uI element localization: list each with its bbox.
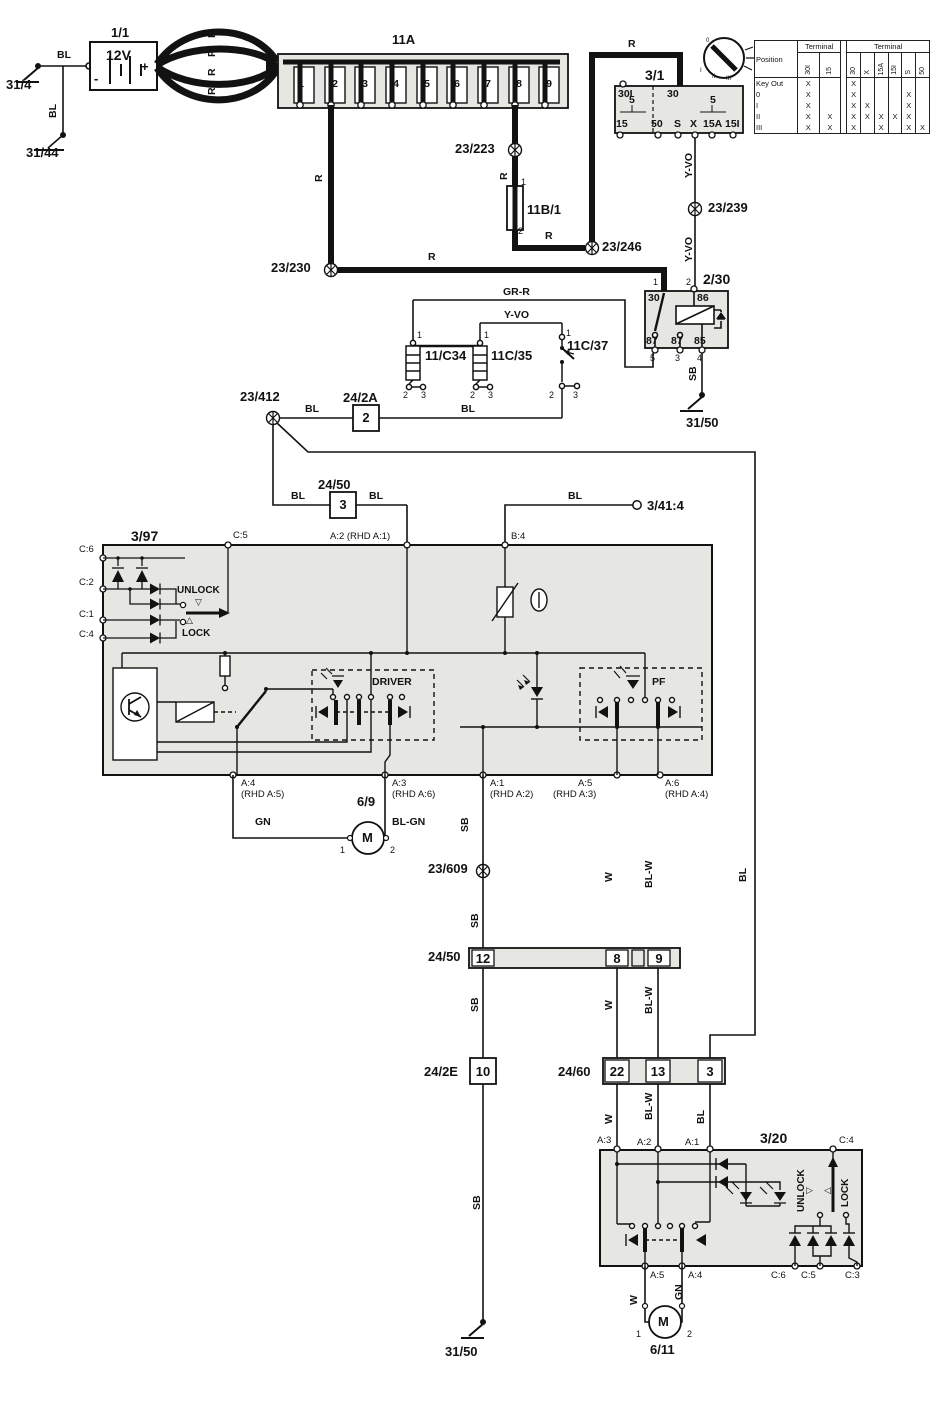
switch37-p2: 2 [549,391,554,400]
unit397-id: 3/97 [131,529,158,543]
wire-label-r: R [207,30,218,38]
key-pos-0: 0 [706,38,709,44]
unit397-c1: C:1 [79,610,94,620]
switch37-p1: 1 [566,329,571,338]
conn24-50a-id: 24/50 [318,478,351,491]
wire-label-bl: BL [696,1110,707,1124]
unit397-unlock: UNLOCK [177,586,220,596]
unit397-a4: A:4 [241,779,255,789]
splice-23-412 [267,412,280,425]
key-pos-2: II [712,74,715,80]
unit397-c4: C:4 [79,630,94,640]
relay-t87a: 87 [646,336,658,347]
key-icon [704,38,755,78]
splice-label-23-246: 23/246 [602,240,642,253]
wire-label-gn: GN [255,817,271,828]
strip24-50-p8: 8 [606,952,628,965]
fuse-8: 8 [511,79,527,90]
wire-label-sb: SB [688,366,699,381]
wire-label-sb: SB [460,817,471,832]
motor611-m: M [658,1315,669,1328]
strip24-60-p13: 13 [646,1065,670,1078]
splice-23-230 [325,264,338,277]
lamp35-p2: 2 [470,391,475,400]
col-50: 50 [919,67,926,75]
ignition-x: X [690,119,697,130]
wire-label-bl: BL [369,491,383,502]
fuse-4: 4 [388,79,404,90]
wire-label-bl: BL [291,491,305,502]
wire-label-bl: BL [461,404,475,415]
fuse-3: 3 [357,79,373,90]
unit320-lock: LOCK [841,1179,851,1207]
relay-pin2: 2 [686,278,691,287]
unit320-a5: A:5 [650,1271,664,1281]
wire-label-grr: GR-R [503,287,530,298]
wire-label-w: W [604,872,615,882]
lock-arrow-icon: △ [186,616,193,625]
splice-label-23-239: 23/239 [708,201,748,214]
wire-label-bl: BL [57,50,71,61]
unit397-c5: C:5 [233,531,248,541]
fuse-7: 7 [480,79,496,90]
ignition-30: 30 [667,89,679,100]
relay-pin3: 3 [675,354,680,363]
splice-label-23-412: 23/412 [240,390,280,403]
wire-label-yvo: Y-VO [504,310,529,321]
unit397-a2: A:2 (RHD A:1) [330,532,390,542]
motor69-id: 6/9 [357,795,375,808]
connector-3-41-4-circle [633,501,641,509]
ignition-50: 50 [651,119,663,130]
splice-label-23-223: 23/223 [455,142,495,155]
wire-label-blgn: BL-GN [392,817,425,828]
relay-t86: 86 [697,293,709,304]
unit397-lock: LOCK [182,629,210,639]
wire-label-yvo: Y-VO [684,153,695,178]
lamp-11c35 [473,340,493,389]
wire-label-r: R [207,87,218,95]
wire-label-blw: BL-W [644,1093,655,1120]
splice-23-223 [509,144,522,157]
col-15: 15 [826,67,833,75]
lamp35-p3: 3 [488,391,493,400]
wire-label-r: R [545,231,553,242]
splice-23-246 [586,242,599,255]
relay-id: 2/30 [703,272,730,286]
battery-pos: + [141,60,149,73]
unit397-a1: A:1 [490,779,504,789]
fuse-11b1 [507,186,523,230]
wire-label-blw: BL-W [644,861,655,888]
col-15i: 15I [891,65,898,75]
wire-label-blw: BL-W [644,987,655,1014]
unit320-c3: C:3 [845,1271,860,1281]
wire-label-r: R [207,49,218,57]
wire-label-w: W [604,1114,615,1124]
unit320-a2: A:2 [637,1138,651,1148]
ignition-s: S [674,119,681,130]
unit397-a5: A:5 [578,779,592,789]
wire-label-bl: BL [568,491,582,502]
motor611-p2: 2 [687,1330,692,1339]
relay-t87b: 87 [671,336,683,347]
unit397-a3-rhd: (RHD A:6) [392,790,435,800]
unit397-c6: C:6 [79,545,94,555]
relay-t30: 30 [648,293,660,304]
wiring-diagram-svg [0,0,931,1416]
ground-31-50-bottom [461,1324,484,1338]
conn3-41-4-id: 3/41:4 [647,499,684,512]
wire-label-r: R [628,39,636,50]
relay-pin4: 4 [697,354,702,363]
fuse-11b1-pin2: 2 [518,227,523,236]
splice-23-239 [689,203,702,216]
yvo-lamp-wire [480,323,562,340]
lamp34-p1: 1 [417,331,422,340]
unit320-a4: A:4 [688,1271,702,1281]
lamp34-p2: 2 [403,391,408,400]
strip24-60-p22: 22 [605,1065,629,1078]
strip24-50-p9: 9 [648,952,670,965]
unit397-a3: A:3 [392,779,406,789]
strip24-50-p12: 12 [472,952,494,965]
conn24-50a-pin: 3 [330,498,356,511]
ground-label-31-44: 31/44 [26,146,59,159]
unit320-id: 3/20 [760,1131,787,1145]
splice-label-23-230: 23/230 [271,261,311,274]
unit397-a6-rhd: (RHD A:4) [665,790,708,800]
unit320-c5: C:5 [801,1271,816,1281]
unit397-a1-rhd: (RHD A:2) [490,790,533,800]
wire-label-yvo: Y-VO [684,237,695,262]
unit320-c4: C:4 [839,1136,854,1146]
fuse-1: 1 [293,79,309,90]
fusebox-id: 11A [392,33,415,46]
unit397-pf: PF [652,677,665,688]
switch37-id: 11C/37 [567,339,608,352]
unlock-arrow-icon: ▽ [195,598,202,607]
col-15a: 15A [878,63,885,75]
wire-label-sb: SB [472,1195,483,1210]
unit397-a4-rhd: (RHD A:5) [241,790,284,800]
ignition-15i: 15I [725,119,740,130]
lock-arrow-icon: ◁ [824,1186,831,1195]
relay-t85: 85 [694,336,706,347]
strip24-60-p3: 3 [698,1065,722,1078]
unit397-b4: B:4 [511,532,525,542]
ignition-amp-right: 5 [710,95,716,106]
unit320-c6: C:6 [771,1271,786,1281]
wire-label-sb: SB [470,913,481,928]
unit397-driver: DRIVER [372,677,412,688]
fuse-11b1-pin1: 1 [521,178,526,187]
ignition-id: 3/1 [645,68,664,82]
table-header-terminal-right: Terminal [847,41,930,53]
lamp35-id: 11C/35 [491,349,532,362]
table-header-position: Position [755,41,798,78]
unit397-a5-rhd: (RHD A:3) [553,790,596,800]
ignition-15a: 15A [703,119,722,130]
col-30: 30 [850,67,857,75]
wiring-diagram-page: 31/4 BL BL 31/44 1/1 12V - + R R R R 11A… [0,0,931,1416]
battery-voltage: 12V [106,48,131,62]
conn24-2e-pin: 10 [470,1065,496,1078]
key-position-table: Position Terminal Terminal 30I 15 30 X 1… [754,40,930,134]
key-pos-3: III [726,76,731,82]
wire-label-r: R [314,174,325,182]
ground-label-31-4: 31/4 [6,78,31,91]
relay-pin5: 5 [650,354,655,363]
wire-label-w: W [604,1000,615,1010]
wire-label-r: R [428,252,436,263]
strip24-50-id: 24/50 [428,950,461,963]
battery-neg: - [94,72,98,85]
unit-3-97 [100,540,712,778]
switch37-p3: 3 [573,391,578,400]
col-s: S [905,70,912,75]
wire-label-r: R [499,172,510,180]
ignition-amp-left: 5 [629,95,635,106]
relay-pin1: 1 [653,278,658,287]
unit397-c2: C:2 [79,578,94,588]
col-30i: 30I [805,65,812,75]
unlock-arrow-icon: ▷ [806,1186,813,1195]
strip24-60-id: 24/60 [558,1065,591,1078]
motor69-p1: 1 [340,846,345,855]
wire-label-w: W [629,1295,640,1305]
ground-label-31-50: 31/50 [686,416,719,429]
wire-label-r: R [207,68,218,76]
wire-label-bl: BL [305,404,319,415]
wire-label-bl: BL [48,104,59,118]
ignition-15: 15 [616,119,628,130]
wire-label-bl: BL [738,868,749,882]
wire-label-gn: GN [674,1284,685,1300]
conn24-2a-id: 24/2A [343,391,378,404]
ground-label-31-50-bottom: 31/50 [445,1345,478,1358]
unit320-a1: A:1 [685,1138,699,1148]
fuse-2: 2 [327,79,343,90]
conn24-2a-pin: 2 [353,411,379,424]
fuse-6: 6 [449,79,465,90]
fuse-9: 9 [541,79,557,90]
unit397-a6: A:6 [665,779,679,789]
lamp34-id: 11/C34 [425,349,466,362]
col-x: X [864,70,871,75]
splice-label-23-609: 23/609 [428,862,468,875]
battery-id: 1/1 [111,26,129,39]
motor69-p2: 2 [390,846,395,855]
table-header-terminal-left: Terminal [798,41,841,53]
motor611-p1: 1 [636,1330,641,1339]
wire-label-sb: SB [470,997,481,1012]
lamp34-p3: 3 [421,391,426,400]
lamp35-p1: 1 [484,331,489,340]
conn24-2e-id: 24/2E [424,1065,458,1078]
motor69-m: M [362,831,373,844]
motor611-id: 6/11 [650,1343,675,1356]
key-pos-1: I [700,68,702,74]
unit320-a3: A:3 [597,1136,611,1146]
fuse-11b1-id: 11B/1 [527,203,561,216]
unit-3-20 [600,1146,862,1269]
fuse-5: 5 [419,79,435,90]
